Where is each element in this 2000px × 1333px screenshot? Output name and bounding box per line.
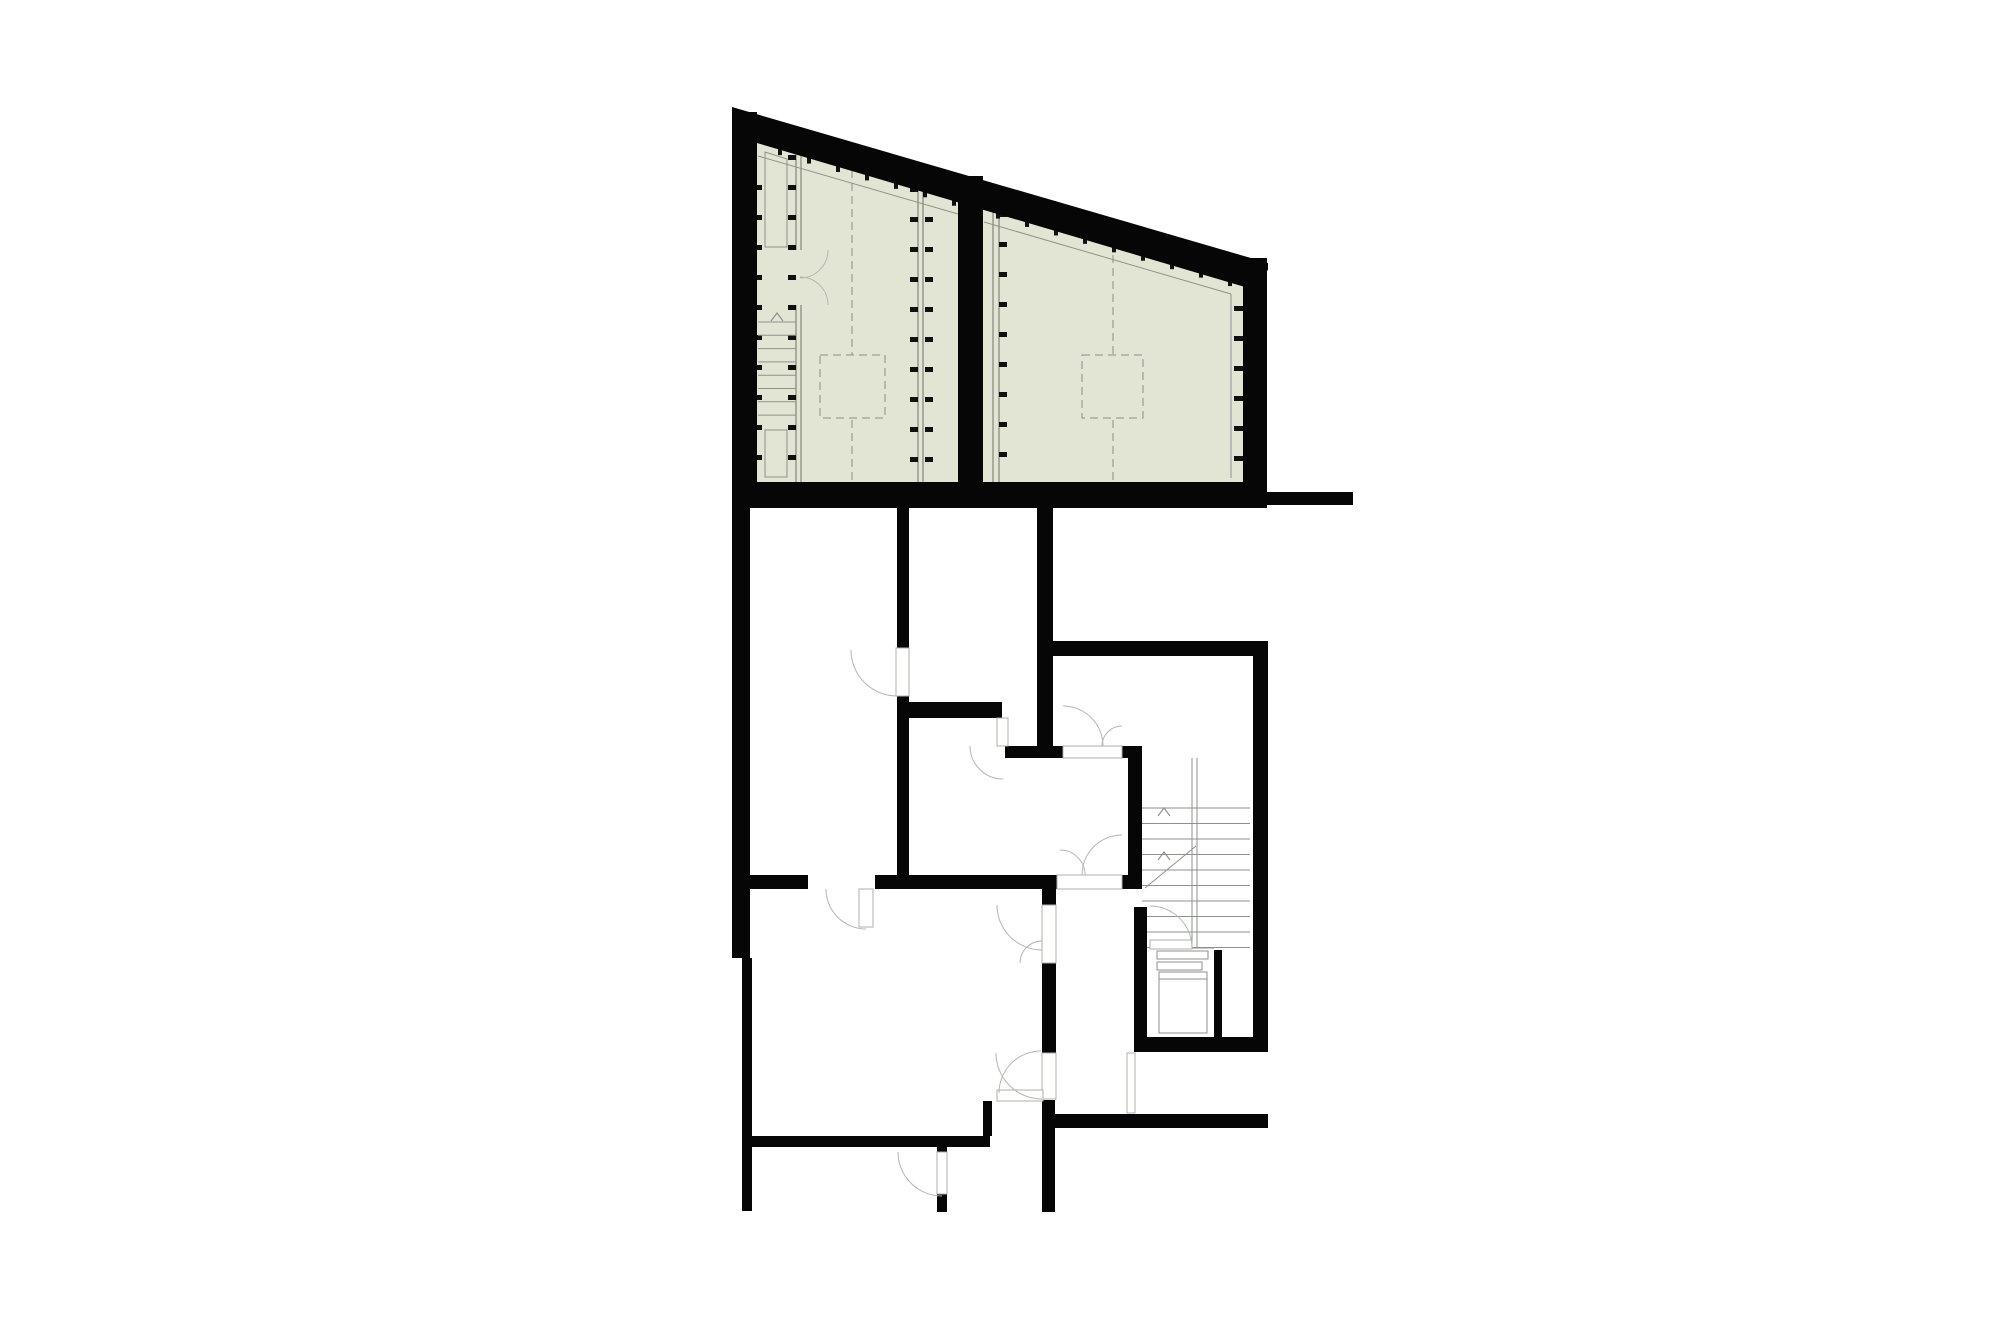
south-east-wall: [1053, 1114, 1268, 1128]
room1-p2-ticks-east: [925, 247, 933, 252]
corridor-door-upper-small-leaf-swing-arc: [1020, 941, 1042, 963]
door-bottom-middle-leaf: [997, 1090, 1043, 1101]
room1-p2-ticks-east: [925, 457, 933, 462]
green-base-wall: [732, 482, 1267, 508]
lower-left-south-wall: [750, 1136, 990, 1147]
wall-h-mid: [1042, 963, 1056, 1053]
utility-counter-a: [1157, 951, 1208, 959]
wall-a-upper: [897, 508, 909, 648]
room2-east-ticks: [1234, 366, 1243, 371]
right-exterior-wall-green: [1243, 258, 1267, 508]
room1-p2-ticks-east: [925, 427, 933, 432]
room1-p1-ticks: [788, 215, 796, 220]
room1-p2-ticks-east: [925, 397, 933, 402]
room1-p2-ticks-east: [925, 337, 933, 342]
hall-south-double-door-west-leaf-leaf: [1057, 875, 1122, 889]
door-jamb-lower: [937, 1194, 947, 1212]
corridor-door-upper-swing-arc: [997, 905, 1042, 950]
door-southeast-gap-leaf: [1127, 1053, 1135, 1113]
door-southwest-room-leaf: [859, 889, 873, 927]
room1-p2-ticks-east: [925, 367, 933, 372]
room1-p2-ticks-east: [925, 277, 933, 282]
utility-west-wall: [1134, 907, 1147, 1052]
room1-p2-ticks-west: [910, 367, 918, 372]
door-bottom-middle-swing-arc: [999, 1051, 1041, 1093]
floor-plan-svg: [0, 0, 2000, 1333]
room2-east-ticks: [1234, 396, 1243, 401]
room1-p1-ticks: [788, 395, 796, 400]
room1-p1-ticks: [788, 365, 796, 370]
room2-p3-ticks: [999, 272, 1007, 277]
corridor-door-upper-leaf: [1042, 905, 1056, 963]
room1-p2-ticks-east: [925, 217, 933, 222]
stairwell-direction-arrow-a: [1158, 808, 1170, 816]
room1-p1-ticks: [788, 305, 796, 310]
washer-appliance: [1159, 972, 1207, 1033]
room1-p2-ticks-west: [910, 247, 918, 252]
utility-south-wall: [1134, 1037, 1268, 1052]
room1-p2-ticks-west: [910, 307, 918, 312]
room2-east-ticks: [1234, 456, 1243, 461]
room1-p2-ticks-west: [910, 427, 918, 432]
room1-p1-ticks: [788, 245, 796, 250]
hall-north-double-door-west-leaf-swing-arc: [1063, 706, 1103, 746]
door-stair-to-utility-leaf: [1150, 940, 1192, 949]
room1-p2-ticks-east: [925, 307, 933, 312]
room2-p3-ticks: [999, 452, 1007, 457]
room2-p3-ticks: [999, 392, 1007, 397]
shaft-divider-wall: [1214, 950, 1222, 1037]
door-mid-room-leaf: [997, 718, 1008, 746]
stairwell-west-wall: [1128, 758, 1142, 875]
wall-g-mid: [875, 875, 1057, 889]
room2-p3-ticks: [999, 302, 1007, 307]
room1-p2-ticks-west: [910, 337, 918, 342]
room1-p1-ticks: [788, 185, 796, 190]
door-bottom-room-leaf: [937, 1152, 947, 1194]
room1-p1-ticks: [788, 155, 796, 160]
door-bottom-room-swing-arc: [898, 1152, 942, 1196]
left-exterior-wall-upper: [732, 112, 757, 508]
wall-f: [1253, 643, 1268, 1052]
door-west-room-leaf: [896, 648, 909, 696]
room2-p3-ticks: [999, 422, 1007, 427]
hall-south-double-door-east-leaf-swing-arc: [1082, 835, 1122, 875]
wall-g-west: [744, 875, 808, 889]
south-wall-stub: [983, 1101, 992, 1136]
wall-c-east: [1122, 746, 1142, 758]
wall-c-west: [1005, 746, 1063, 758]
hall-north-double-door-west-leaf-leaf: [1063, 746, 1122, 758]
door-mid-room-swing-arc: [970, 746, 1003, 779]
room1-p1-ticks: [788, 275, 796, 280]
room1-p2-ticks-west: [910, 457, 918, 462]
room2-p3-ticks: [999, 332, 1007, 337]
east-extension-wall: [1267, 492, 1353, 505]
wall-e: [1037, 508, 1053, 758]
room1-p2-ticks-west: [910, 277, 918, 282]
door-west-room-swing-arc: [851, 650, 897, 696]
room1-p1-ticks: [788, 455, 796, 460]
wall-h-upper: [1042, 889, 1056, 905]
stairwell-direction-arrow-b: [1158, 852, 1170, 860]
utility-counter-b: [1157, 962, 1202, 970]
green-divider-wall: [958, 176, 983, 508]
left-wall-lower: [742, 958, 752, 1211]
detail-line-5: [1145, 846, 1196, 888]
room2-p3-ticks: [999, 242, 1007, 247]
room2-east-ticks: [1234, 336, 1243, 341]
room1-p2-ticks-west: [910, 217, 918, 222]
corridor-door-lower-leaf: [1042, 1053, 1056, 1099]
hall-south-double-door-west-leaf-swing-arc: [1060, 850, 1085, 875]
room1-p2-ticks-west: [910, 397, 918, 402]
room1-p1-ticks: [788, 425, 796, 430]
wall-g-east: [1122, 875, 1142, 889]
room2-east-ticks: [1234, 426, 1243, 431]
left-wall-mid: [732, 508, 750, 958]
wall-a-lower: [897, 696, 909, 875]
floor-plan-page: [0, 0, 2000, 1333]
wall-b: [897, 702, 1002, 718]
room2-p3-ticks: [999, 362, 1007, 367]
hall-north-double-door-east-leaf-swing-arc: [1102, 726, 1122, 746]
wall-d: [1043, 641, 1268, 656]
room2-east-ticks: [1234, 306, 1243, 311]
